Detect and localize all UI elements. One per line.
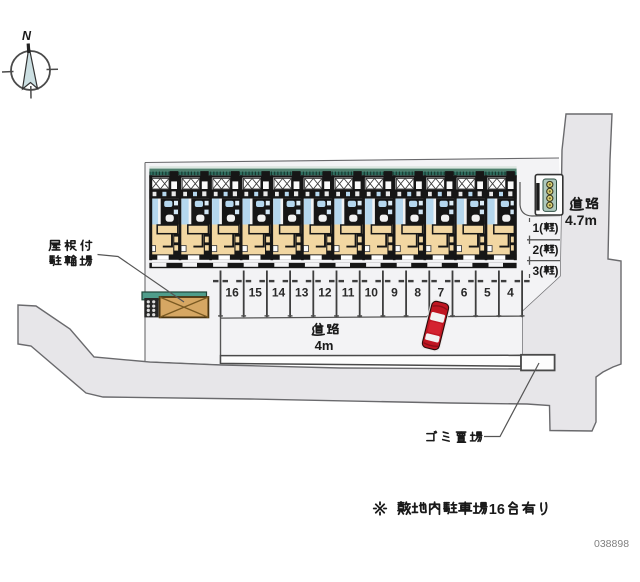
svg-text:): )	[555, 243, 559, 257]
svg-text:1(: 1(	[533, 221, 544, 235]
svg-text:9: 9	[391, 286, 398, 300]
svg-text:10: 10	[365, 286, 379, 300]
svg-text:N: N	[22, 29, 32, 43]
svg-text:038898: 038898	[594, 538, 629, 550]
svg-text:4m: 4m	[315, 338, 334, 353]
svg-text:16: 16	[489, 502, 505, 518]
svg-text:6: 6	[461, 286, 468, 300]
svg-text:8: 8	[414, 286, 421, 300]
svg-text:7: 7	[438, 286, 445, 300]
svg-text:5: 5	[484, 286, 491, 300]
svg-text:4: 4	[507, 286, 514, 300]
svg-text:3(: 3(	[533, 264, 544, 278]
svg-text:15: 15	[249, 286, 263, 300]
svg-text:13: 13	[295, 286, 309, 300]
svg-text:4.7m: 4.7m	[565, 212, 597, 228]
svg-text:): )	[555, 264, 559, 278]
svg-text:11: 11	[342, 286, 355, 300]
svg-text:12: 12	[318, 286, 332, 300]
svg-text:2(: 2(	[533, 243, 544, 257]
svg-text:14: 14	[272, 286, 286, 300]
svg-text:16: 16	[225, 286, 239, 300]
svg-text:): )	[555, 221, 559, 235]
